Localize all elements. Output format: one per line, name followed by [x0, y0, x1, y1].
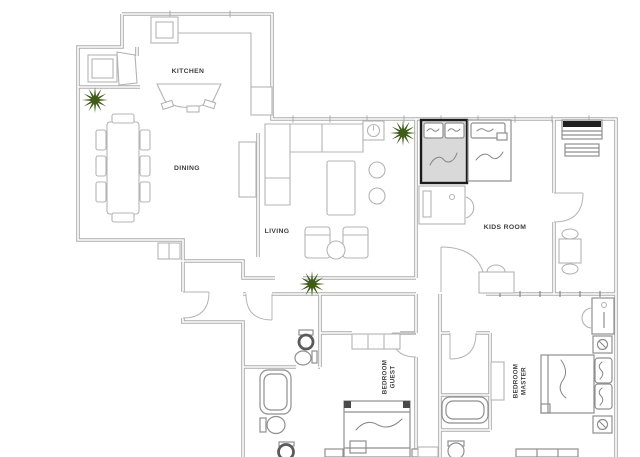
side-table: [369, 188, 385, 204]
dining-chair: [112, 114, 134, 123]
kids-desk: [419, 186, 465, 224]
window-ticks: [170, 11, 589, 123]
dining-chair: [96, 182, 106, 202]
guest-bedroom: BEDROOM GUEST: [325, 334, 438, 457]
kitchen: KITCHEN: [88, 17, 272, 115]
room-label-dining: DINING: [174, 165, 200, 172]
living: LIVING: [239, 121, 385, 259]
island-stool: [203, 100, 215, 109]
bench-sofa: [516, 449, 578, 457]
room-label-guest: BEDROOM GUEST: [382, 360, 397, 394]
pillow: [595, 358, 612, 383]
shelf-dark-band: [563, 121, 601, 127]
plant-icon: [82, 87, 108, 113]
kitchen-counter: [178, 33, 251, 87]
shelf-unit: [565, 144, 599, 156]
round-table: [327, 241, 345, 259]
small-table: [559, 239, 581, 263]
dining-chair: [140, 130, 150, 150]
room-label-master: BEDROOM MASTER: [513, 364, 528, 398]
wc-door-arc: [246, 294, 272, 320]
guest-closet: [352, 334, 400, 349]
dining-chair: [96, 156, 106, 176]
toilet-icon: [267, 417, 285, 434]
room-label-guest-line2: BEDROOM: [382, 360, 389, 394]
floor-plan: KITCHEN DINING LIVING: [0, 0, 640, 457]
toilet-icon: [299, 335, 313, 349]
room-label-kitchen: KITCHEN: [172, 68, 205, 75]
sink-counter: [312, 351, 317, 363]
bed-post: [344, 401, 351, 408]
dining-table: [107, 122, 139, 214]
chair: [562, 229, 578, 239]
master-bedroom: BEDROOM MASTER: [491, 298, 614, 457]
room-label-guest-line1: GUEST: [390, 366, 397, 389]
island-stool: [161, 100, 173, 109]
armchair: [343, 227, 368, 258]
room-label-master-line2: BEDROOM: [513, 364, 520, 398]
toilet-tank: [260, 418, 266, 432]
floor-plan-canvas: KITCHEN DINING LIVING: [0, 0, 640, 457]
nightstand: [325, 449, 343, 457]
bed-corner-box: [497, 133, 507, 140]
dresser-chair: [487, 265, 505, 272]
dining: DINING: [96, 114, 200, 259]
kids-dresser: [479, 272, 514, 293]
closet-room: [559, 120, 602, 274]
side-table: [369, 162, 385, 178]
island-stool: [187, 106, 199, 112]
room-label-living: LIVING: [265, 228, 290, 235]
pillow: [595, 384, 612, 409]
room-label-master-line1: MASTER: [521, 367, 528, 395]
master-bathroom: [442, 397, 488, 457]
armchair: [305, 227, 330, 258]
dining-chair: [140, 156, 150, 176]
bed-post: [403, 401, 410, 408]
dining-chair: [112, 213, 134, 222]
kids-room: KIDS ROOM: [419, 120, 526, 293]
dining-chair: [96, 130, 106, 150]
guest-bathroom: [260, 370, 294, 457]
kitchen-counter-end: [251, 87, 272, 115]
closet-room-door-arc: [554, 193, 583, 222]
sink-icon: [279, 445, 294, 457]
coffee-table: [327, 161, 355, 215]
room-label-kids: KIDS ROOM: [484, 224, 526, 231]
pantry-door: [117, 52, 137, 85]
desk-chair: [582, 308, 592, 328]
chair: [562, 264, 578, 274]
dresser: [491, 362, 504, 400]
toilet-icon: [448, 443, 464, 457]
wc-room: [295, 330, 317, 365]
master-bath-door-arc: [450, 333, 476, 359]
console-shelf: [239, 142, 256, 197]
dining-chair: [140, 182, 150, 202]
plant-icon: [390, 120, 416, 146]
hall-cabinet: [418, 447, 438, 457]
sink-icon: [295, 351, 311, 365]
desk-chair: [466, 197, 474, 218]
master-desk: [592, 298, 614, 334]
entry-door-arc: [183, 292, 209, 318]
bathtub: [260, 370, 291, 414]
stove: [151, 17, 178, 43]
